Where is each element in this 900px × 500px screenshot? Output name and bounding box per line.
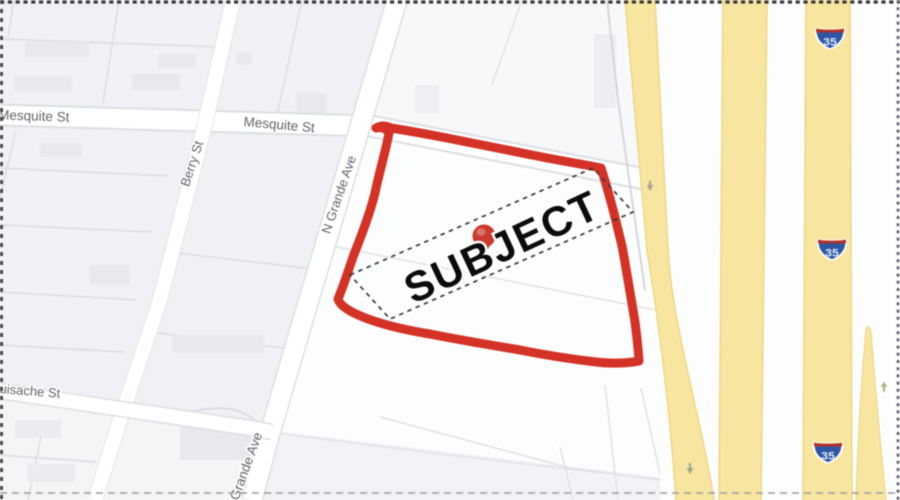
svg-text:Mesquite St: Mesquite St xyxy=(0,107,70,124)
svg-text:35: 35 xyxy=(825,247,839,259)
svg-text:35: 35 xyxy=(821,450,835,462)
svg-text:35: 35 xyxy=(823,36,837,48)
